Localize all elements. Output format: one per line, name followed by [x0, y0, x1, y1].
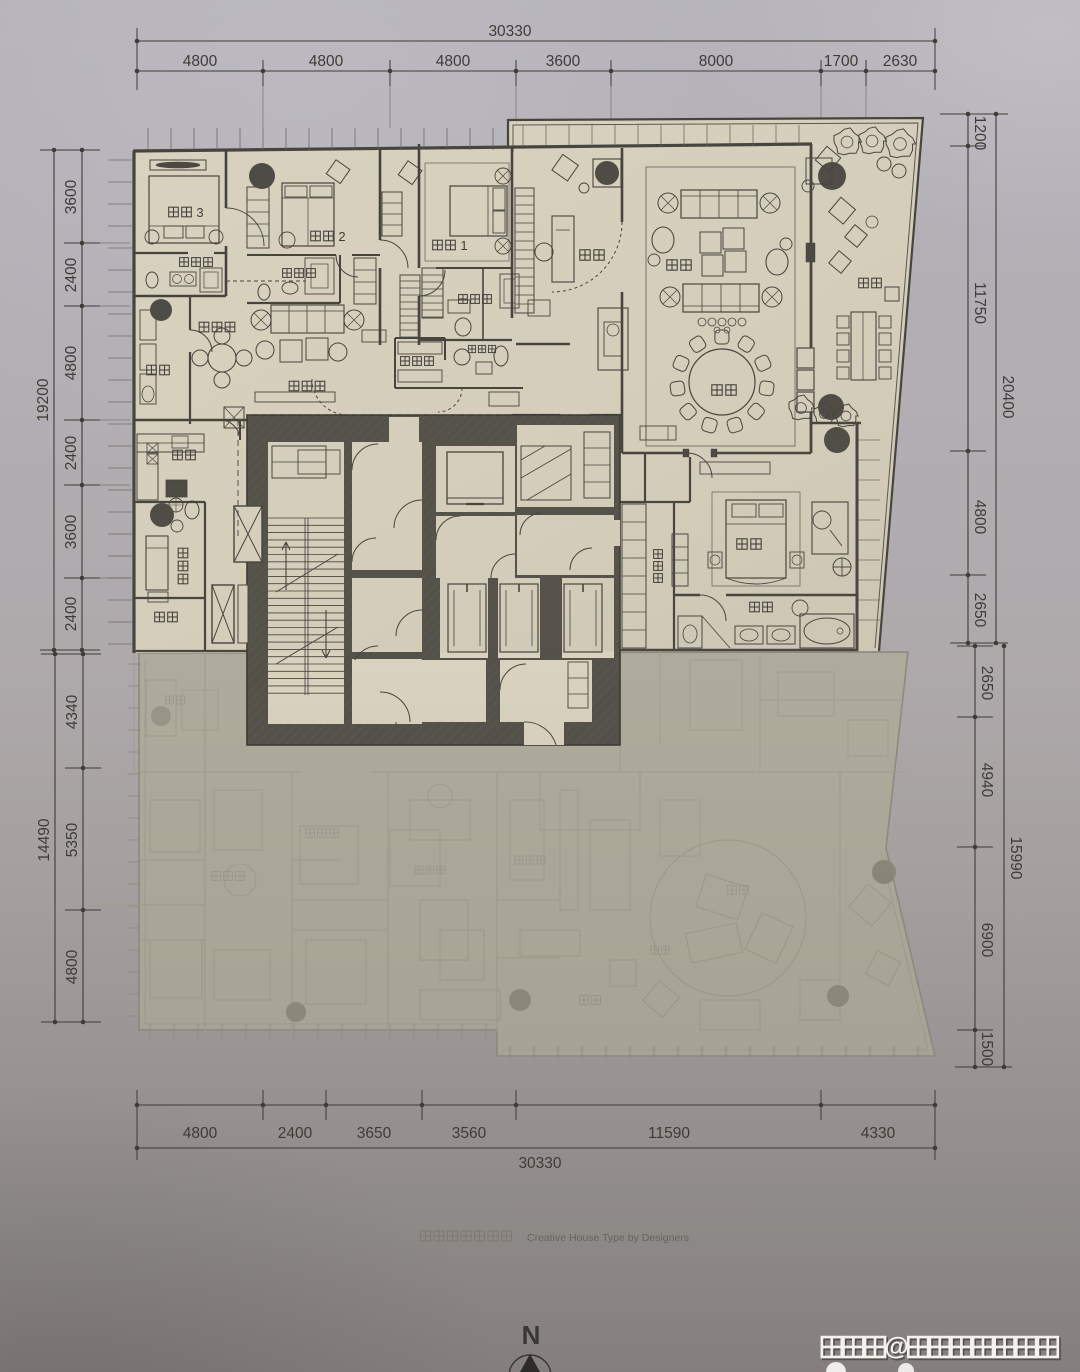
svg-text:4340: 4340 — [64, 694, 81, 729]
svg-text:4800: 4800 — [436, 53, 471, 70]
svg-text:11750: 11750 — [971, 282, 988, 324]
svg-text:8000: 8000 — [699, 53, 734, 70]
svg-text:2400: 2400 — [63, 435, 80, 470]
svg-text:1700: 1700 — [824, 53, 859, 70]
svg-text:3600: 3600 — [63, 179, 80, 214]
svg-text:4940: 4940 — [978, 763, 995, 798]
svg-text:2630: 2630 — [883, 53, 918, 70]
svg-text:3650: 3650 — [357, 1125, 392, 1142]
svg-text:4800: 4800 — [183, 53, 218, 70]
svg-text:20400: 20400 — [999, 375, 1016, 418]
svg-text:4800: 4800 — [183, 1125, 218, 1142]
svg-text:30330: 30330 — [488, 23, 531, 40]
svg-text:N: N — [522, 1320, 541, 1350]
svg-text:6900: 6900 — [978, 923, 995, 958]
svg-text:Creative House Type by Des: Creative House Type by Designers — [527, 1232, 689, 1244]
svg-text:@: @ — [884, 1333, 908, 1361]
svg-text:3560: 3560 — [452, 1125, 487, 1142]
svg-text:4800: 4800 — [63, 345, 80, 380]
svg-text:1200: 1200 — [971, 116, 988, 151]
svg-text:15990: 15990 — [1007, 836, 1024, 879]
svg-text:4330: 4330 — [861, 1125, 896, 1142]
svg-text:1500: 1500 — [978, 1032, 995, 1067]
svg-text:2400: 2400 — [63, 257, 80, 292]
svg-text:3600: 3600 — [546, 53, 581, 70]
svg-text:14490: 14490 — [36, 818, 53, 861]
svg-text:4800: 4800 — [971, 500, 988, 535]
svg-text:3600: 3600 — [63, 514, 80, 549]
svg-text:2400: 2400 — [63, 596, 80, 631]
svg-text:4800: 4800 — [309, 53, 344, 70]
svg-text:5350: 5350 — [64, 822, 81, 857]
svg-text:2400: 2400 — [278, 1125, 313, 1142]
svg-text:4800: 4800 — [64, 949, 81, 984]
svg-text:2650: 2650 — [978, 666, 995, 701]
svg-text:30330: 30330 — [518, 1155, 561, 1172]
svg-text:11590: 11590 — [648, 1125, 690, 1142]
svg-text:19200: 19200 — [35, 378, 52, 421]
svg-text:2650: 2650 — [971, 593, 988, 628]
